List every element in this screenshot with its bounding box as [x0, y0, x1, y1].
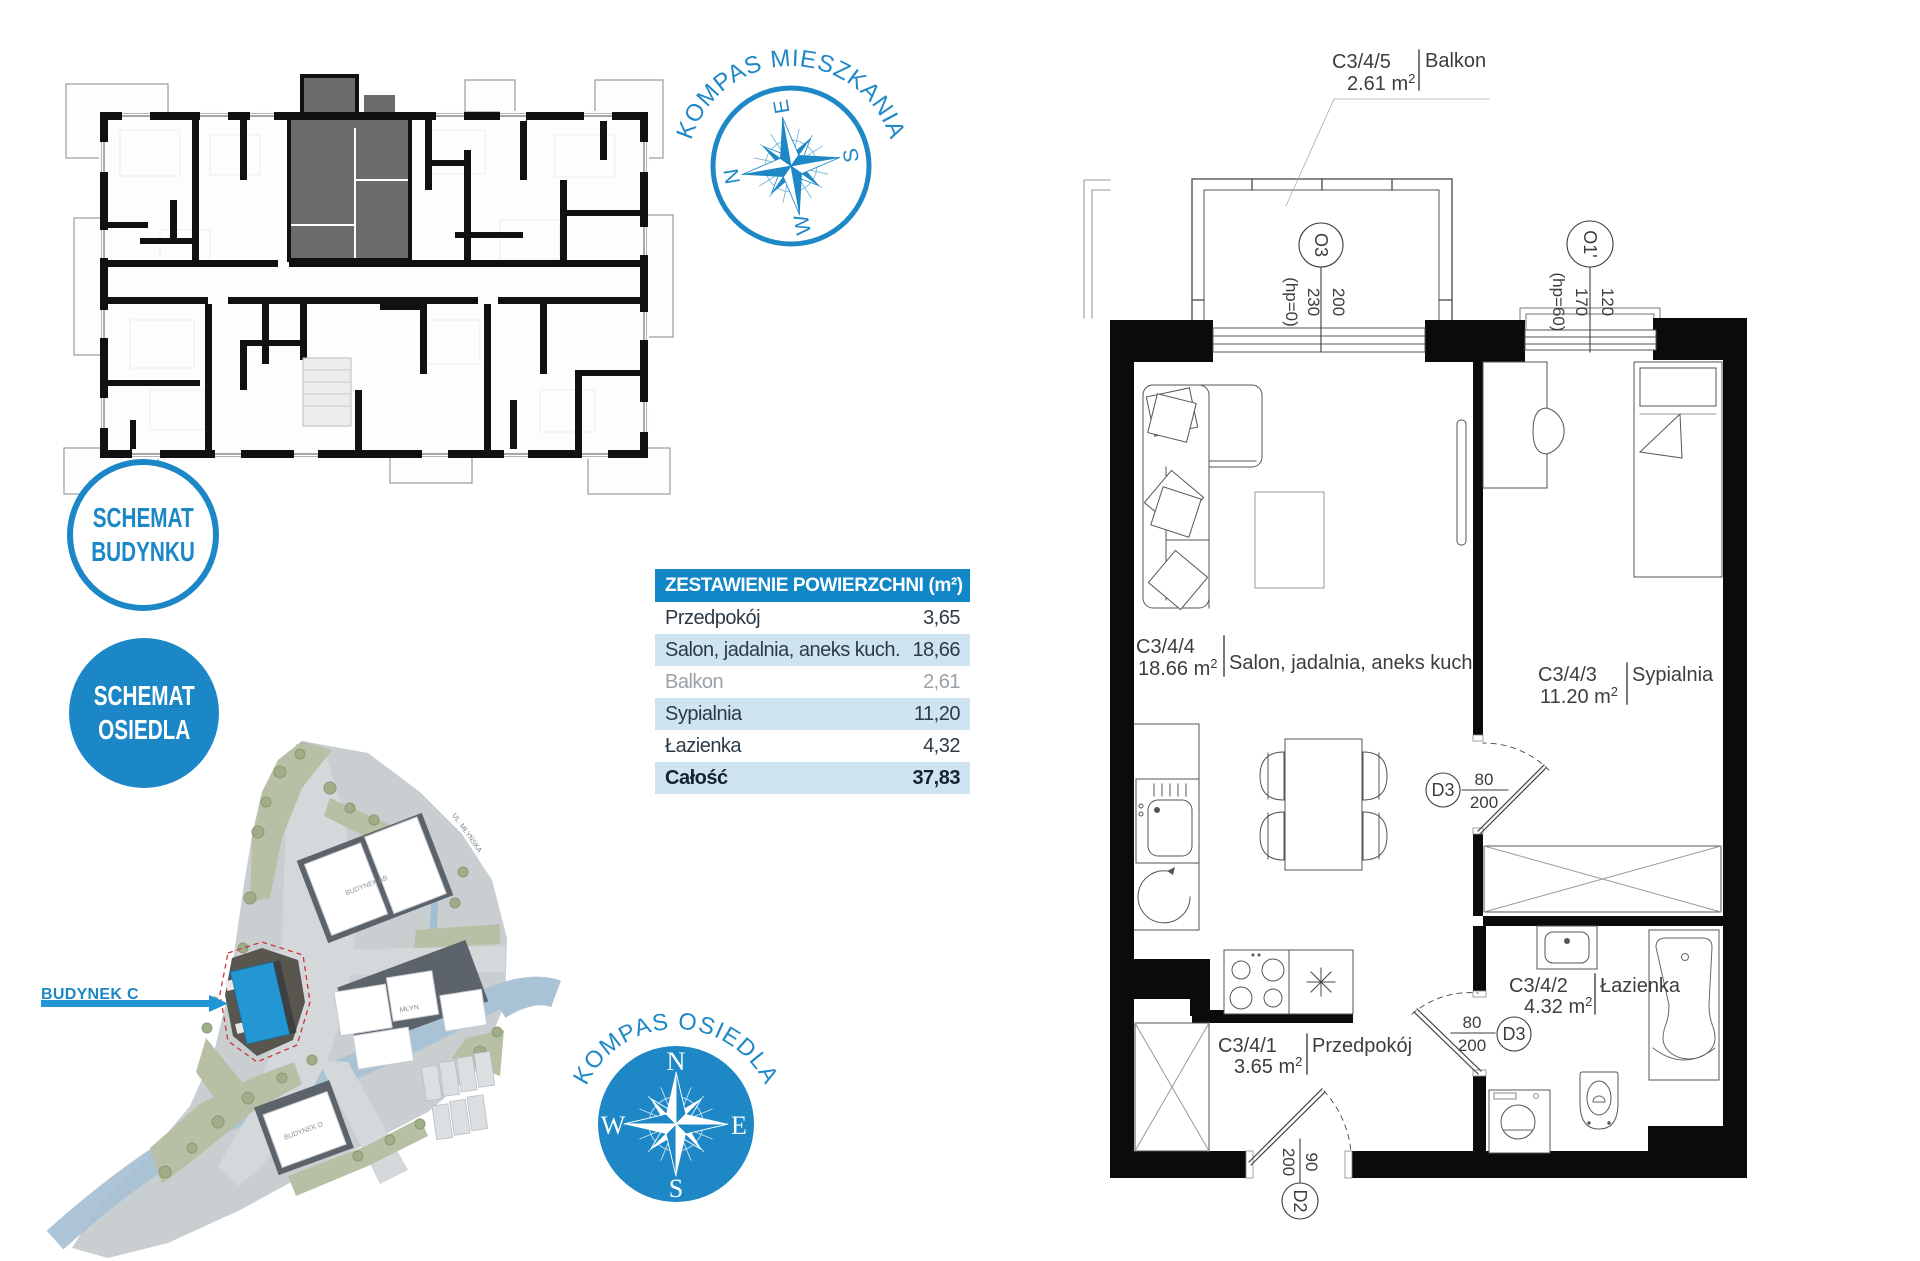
svg-text:S: S [839, 146, 864, 164]
svg-text:C3/4/5: C3/4/5 [1332, 51, 1391, 73]
svg-text:N: N [720, 167, 745, 186]
svg-text:18.66 m2: 18.66 m2 [1138, 656, 1218, 680]
svg-text:W: W [790, 213, 816, 237]
svg-text:N: N [667, 1047, 686, 1076]
svg-text:Łazienka: Łazienka [1600, 975, 1681, 997]
svg-text:C3/4/2: C3/4/2 [1509, 975, 1568, 997]
svg-text:S: S [669, 1174, 683, 1203]
svg-text:200: 200 [1458, 1036, 1486, 1055]
svg-text:KOMPAS MIESZKANIA: KOMPAS MIESZKANIA [671, 45, 910, 143]
svg-text:D3: D3 [1431, 780, 1454, 800]
svg-text:C3/4/3: C3/4/3 [1538, 664, 1597, 686]
svg-text:O1': O1' [1580, 230, 1600, 257]
svg-text:170: 170 [1572, 288, 1591, 316]
svg-text:Salon, jadalnia, aneks kuch.: Salon, jadalnia, aneks kuch. [1229, 652, 1478, 674]
svg-text:4.32 m2: 4.32 m2 [1524, 994, 1592, 1018]
svg-text:C3/4/1: C3/4/1 [1218, 1035, 1277, 1057]
svg-text:80: 80 [1475, 770, 1494, 789]
svg-text:200: 200 [1470, 793, 1498, 812]
svg-text:11.20 m2: 11.20 m2 [1540, 684, 1618, 708]
svg-text:230: 230 [1304, 288, 1323, 316]
svg-text:90: 90 [1302, 1153, 1321, 1172]
svg-text:C3/4/4: C3/4/4 [1136, 636, 1195, 658]
svg-text:E: E [770, 98, 795, 116]
svg-text:3.65 m2: 3.65 m2 [1234, 1054, 1302, 1078]
svg-text:80: 80 [1463, 1013, 1482, 1032]
svg-text:2.61 m2: 2.61 m2 [1347, 71, 1415, 95]
svg-text:200: 200 [1279, 1148, 1298, 1176]
svg-text:Balkon: Balkon [1425, 50, 1486, 72]
svg-text:D3: D3 [1502, 1024, 1525, 1044]
svg-text:W: W [601, 1111, 626, 1140]
svg-text:Sypialnia: Sypialnia [1632, 664, 1714, 686]
svg-text:(hp=0): (hp=0) [1282, 277, 1301, 327]
svg-text:D2: D2 [1290, 1189, 1310, 1212]
svg-text:E: E [731, 1111, 747, 1140]
svg-text:O3: O3 [1311, 233, 1331, 257]
svg-text:120: 120 [1598, 288, 1617, 316]
svg-text:200: 200 [1329, 288, 1348, 316]
svg-text:(hp=60): (hp=60) [1549, 272, 1568, 331]
svg-text:Przedpokój: Przedpokój [1312, 1035, 1412, 1057]
